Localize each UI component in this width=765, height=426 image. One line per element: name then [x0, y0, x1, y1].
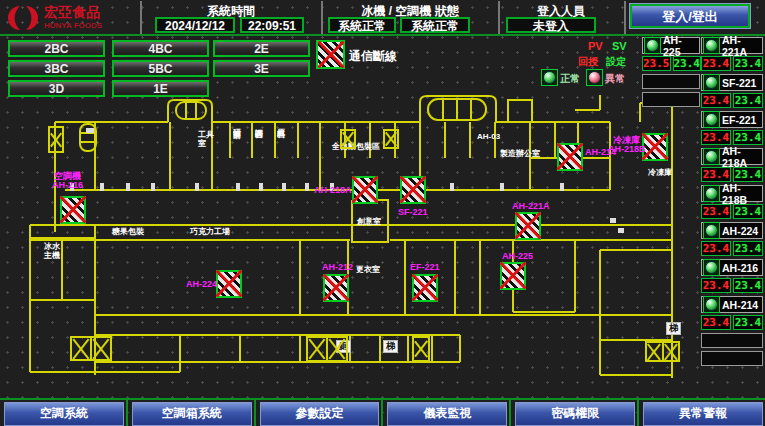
nav-cell: 空調箱系統 — [126, 400, 254, 426]
unit-id-label: AH-218A — [722, 145, 762, 169]
unit-EF-221[interactable]: EF-221 — [701, 111, 763, 128]
room-label: 研磨區 — [232, 122, 241, 125]
room-label: 糖果包裝 — [112, 227, 144, 236]
marker-label-AH-216: 空調機 AH-216 — [52, 172, 83, 190]
unit-values-SF-221: 23.423.4 — [701, 93, 763, 108]
room-label: 創意室 — [357, 217, 381, 226]
room-label: 原料區 — [276, 122, 285, 125]
unit-panel-column-a: AH-22523.523.4 — [642, 0, 700, 426]
unit-sv-value: 23.4 — [733, 315, 763, 330]
unit-values-AH-221A: 23.423.4 — [701, 56, 763, 71]
unit-pv-value: 23.4 — [701, 130, 731, 145]
nav-button-ahu-system[interactable]: 空調箱系統 — [132, 402, 252, 426]
unit-AH-218B[interactable]: AH-218B — [701, 185, 763, 202]
stair-elevator-icon — [340, 129, 356, 149]
unit-id-label: SF-221 — [722, 77, 756, 89]
unit-status-lamp — [703, 296, 720, 313]
room-label: 冰水 主機 — [44, 242, 60, 260]
stair-elevator-icon — [48, 126, 64, 153]
unit-sv-value: 23.4 — [733, 130, 763, 145]
unit-values-AH-216: 23.423.4 — [701, 278, 763, 293]
comm-fail-marker-AH-225[interactable] — [500, 262, 526, 290]
unit-status-lamp — [703, 148, 720, 165]
room-label: 工具 室 — [198, 130, 214, 148]
comm-fail-marker-AH-218A[interactable] — [352, 176, 378, 204]
unit-values-AH-214: 23.423.4 — [701, 315, 763, 330]
unit-values-AH-218B: 23.423.4 — [701, 204, 763, 219]
unit-pv-value: 23.4 — [701, 167, 731, 182]
unit-status-lamp — [703, 185, 720, 202]
unit-AH-218A[interactable]: AH-218A — [701, 148, 763, 165]
unit-pv-value: 23.4 — [701, 204, 731, 219]
nav-button-parameter-settings[interactable]: 參數設定 — [260, 402, 380, 426]
nav-cell: 儀表監視 — [381, 400, 509, 426]
unit-values-AH-218A: 23.423.4 — [701, 167, 763, 182]
nav-cell: 異常警報 — [637, 400, 765, 426]
comm-fail-marker-SF-221[interactable] — [400, 176, 426, 204]
stair-elevator-icon — [383, 129, 399, 149]
room-label: 巧克力工場 — [190, 227, 230, 236]
unit-empty-slot — [701, 351, 763, 366]
unit-empty-slot — [701, 333, 763, 348]
unit-status-lamp — [703, 74, 720, 91]
unit-sv-value: 23.4 — [733, 278, 763, 293]
unit-id-label: AH-214 — [722, 299, 758, 311]
nav-cell: 空調系統 — [0, 400, 126, 426]
unit-panel-column-b: AH-221A23.423.4SF-22123.423.4EF-22123.42… — [701, 0, 763, 426]
nav-button-ac-system[interactable]: 空調系統 — [4, 402, 124, 426]
unit-empty-slot — [642, 92, 700, 107]
room-label: 製造辦公室 — [500, 149, 540, 158]
unit-values-EF-221: 23.423.4 — [701, 130, 763, 145]
marker-label-AH-212: AH-212 — [322, 263, 353, 272]
unit-id-label: AH-216 — [722, 262, 758, 274]
stair-elevator-icon — [412, 336, 430, 362]
unit-id-label: EF-221 — [722, 114, 756, 126]
marker-label-AH-221A: AH-221A — [512, 202, 550, 211]
unit-sv-value: 23.4 — [733, 204, 763, 219]
unit-id-label: AH-225 — [663, 34, 699, 58]
nav-button-meter-monitor[interactable]: 儀表監視 — [387, 402, 507, 426]
marker-label-AH-224: AH-224 — [186, 280, 217, 289]
bottom-nav-bar: 空調系統 空調箱系統 參數設定 儀表監視 密碼權限 異常警報 — [0, 398, 765, 426]
nav-cell: 密碼權限 — [509, 400, 637, 426]
unit-id-label: AH-221A — [722, 34, 762, 58]
room-label: AH-03 — [477, 132, 500, 141]
marker-label-SF-221: SF-221 — [398, 208, 428, 217]
unit-id-label: AH-224 — [722, 225, 758, 237]
unit-AH-224[interactable]: AH-224 — [701, 222, 763, 239]
comm-fail-marker-AH-214[interactable] — [557, 143, 583, 171]
nav-cell: 參數設定 — [254, 400, 382, 426]
unit-pv-value: 23.4 — [701, 278, 731, 293]
stair-elevator-icon — [70, 336, 112, 361]
unit-pv-value: 23.4 — [701, 56, 731, 71]
marker-label-EF-221: EF-221 — [410, 263, 440, 272]
room-label: 更衣室 — [356, 265, 380, 274]
comm-fail-marker-AH-224[interactable] — [216, 270, 242, 298]
comm-fail-marker-EF-221[interactable] — [412, 274, 438, 302]
unit-pv-value: 23.5 — [642, 56, 671, 71]
unit-SF-221[interactable]: SF-221 — [701, 74, 763, 91]
marker-label-AH-218B: 冷凍庫 AH-218B — [608, 136, 646, 154]
unit-sv-value: 23.4 — [733, 241, 763, 256]
unit-status-lamp — [703, 37, 720, 54]
unit-status-lamp — [703, 111, 720, 128]
unit-values-AH-225: 23.523.4 — [642, 56, 700, 71]
unit-id-label: AH-218B — [722, 182, 762, 206]
stair-elevator-icon — [306, 336, 348, 362]
unit-AH-214[interactable]: AH-214 — [701, 296, 763, 313]
marker-label-AH-225: AH-225 — [502, 252, 533, 261]
nav-button-password-auth[interactable]: 密碼權限 — [515, 402, 635, 426]
hmi-screen: { "header": { "logo_title": "宏亞食品", "log… — [0, 0, 765, 426]
unit-AH-225[interactable]: AH-225 — [642, 37, 700, 54]
room-label: 梯 — [383, 340, 398, 353]
unit-status-lamp — [703, 259, 720, 276]
unit-sv-value: 23.4 — [733, 167, 763, 182]
unit-AH-221A[interactable]: AH-221A — [701, 37, 763, 54]
unit-pv-value: 23.4 — [701, 315, 731, 330]
unit-AH-216[interactable]: AH-216 — [701, 259, 763, 276]
unit-sv-value: 23.4 — [673, 56, 702, 71]
unit-sv-value: 23.4 — [733, 93, 763, 108]
marker-label-AH-218A: AH-218A — [314, 186, 352, 195]
nav-button-alarm[interactable]: 異常警報 — [643, 402, 763, 426]
comm-fail-marker-AH-221A[interactable] — [515, 212, 541, 240]
unit-pv-value: 23.4 — [701, 93, 731, 108]
room-label: 調合區 — [254, 122, 263, 125]
unit-status-lamp — [644, 37, 661, 54]
unit-empty-slot — [642, 74, 700, 89]
unit-sv-value: 23.4 — [733, 56, 763, 71]
unit-status-lamp — [703, 222, 720, 239]
unit-pv-value: 23.4 — [701, 241, 731, 256]
unit-values-AH-224: 23.423.4 — [701, 241, 763, 256]
comm-fail-marker-AH-212[interactable] — [323, 274, 349, 302]
comm-fail-marker-AH-216[interactable] — [60, 196, 86, 224]
